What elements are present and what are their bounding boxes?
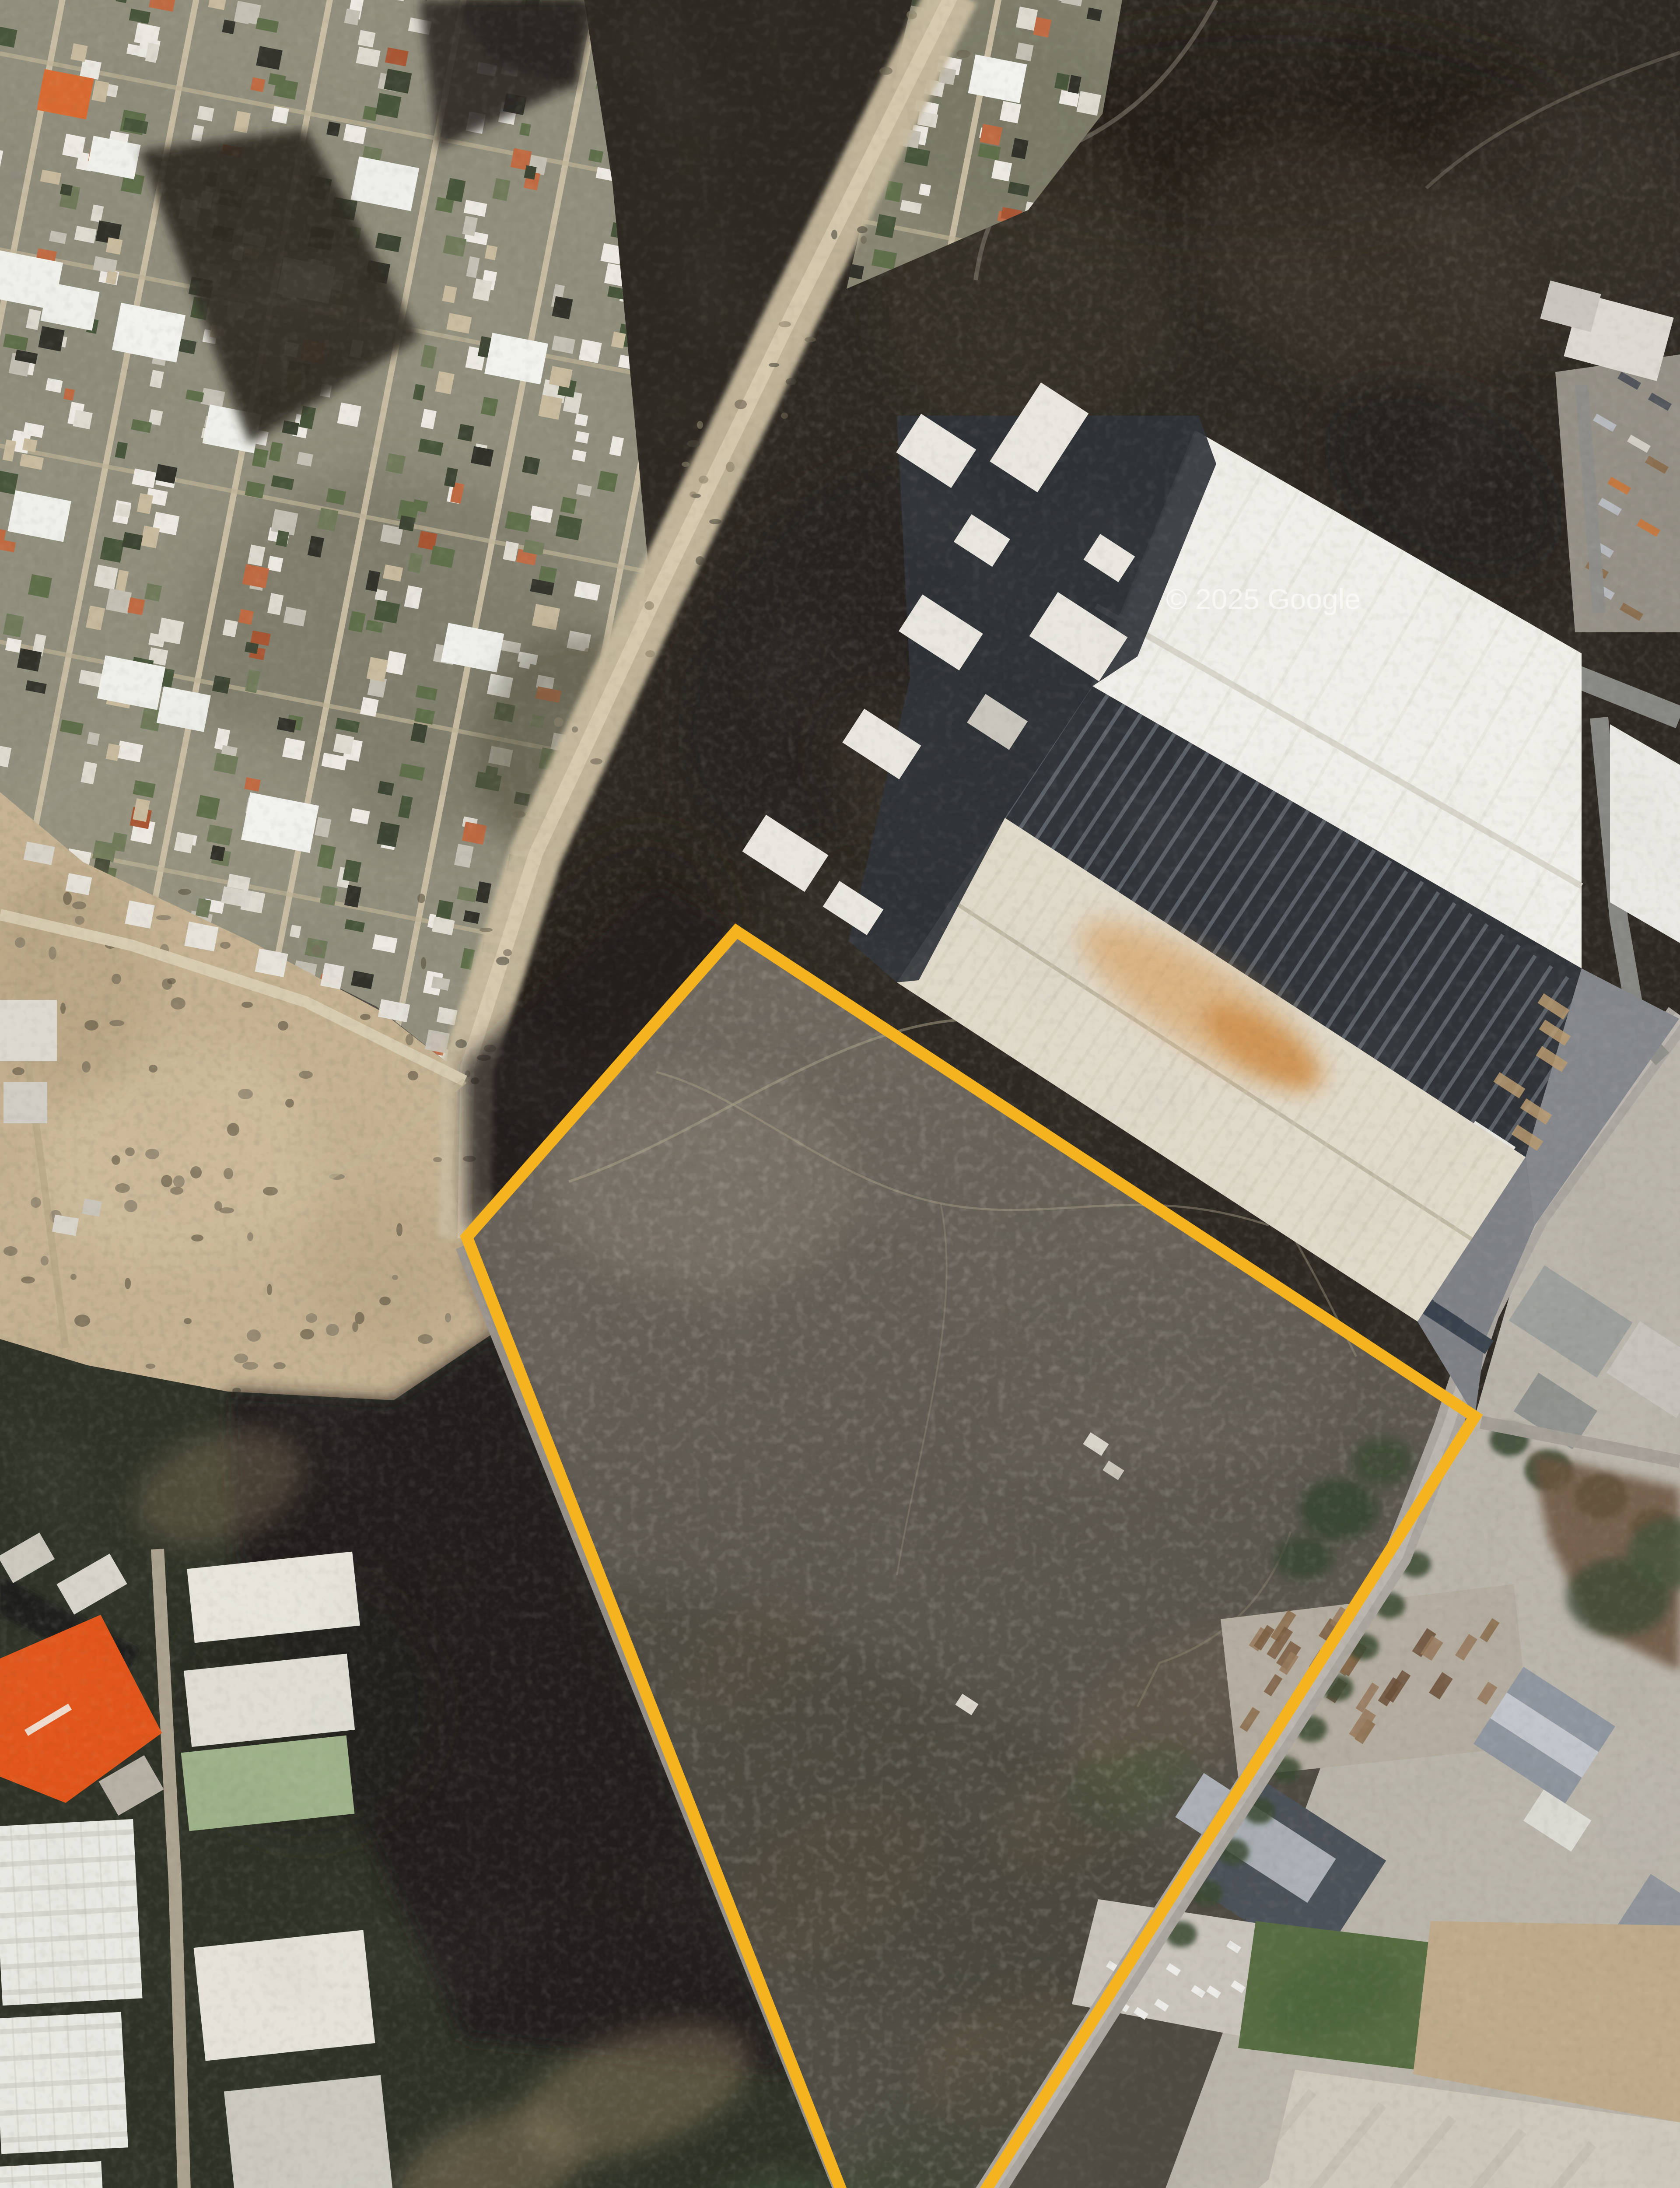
svg-text:© 2025 Google: © 2025 Google — [1166, 583, 1361, 615]
